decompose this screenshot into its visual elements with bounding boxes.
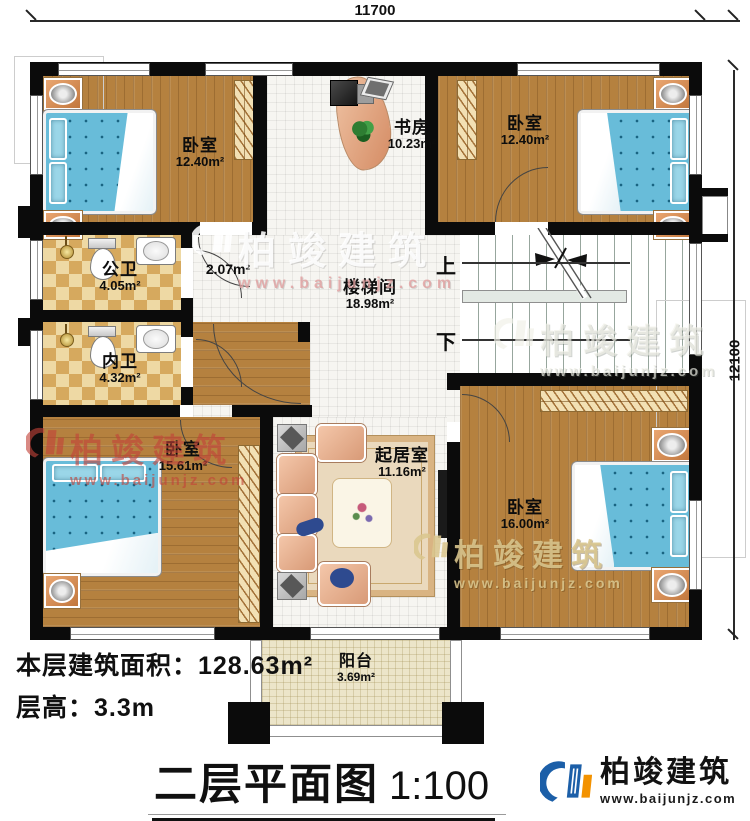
ceiling-lamp-icon: [60, 333, 74, 347]
wardrobe: [457, 80, 477, 160]
window: [689, 95, 702, 175]
window: [30, 240, 43, 300]
wall: [447, 373, 460, 390]
bed: [578, 110, 694, 214]
stair-up-label: 上: [436, 250, 456, 279]
dim-tick: [25, 9, 36, 20]
wall: [253, 75, 267, 235]
window: [517, 63, 660, 76]
window: [30, 95, 43, 175]
room-label-living-room: 起居室 11.16m²: [350, 446, 454, 480]
nightstand: [654, 78, 692, 110]
balcony-railing: [250, 725, 462, 737]
dim-tick: [727, 59, 738, 70]
wall: [232, 405, 312, 417]
drawing-title: 二层平面图 1:100: [152, 750, 495, 821]
window: [58, 63, 150, 76]
stair-down-line: [462, 339, 630, 341]
window: [70, 627, 215, 640]
rug-medallion: [332, 478, 392, 548]
wall: [438, 222, 495, 235]
window: [205, 63, 293, 76]
nightstand: [652, 568, 692, 602]
bed: [43, 110, 156, 214]
dimension-line-top: [30, 20, 740, 22]
room-label-study: 书房 10.23m²: [372, 118, 452, 152]
nightstand: [652, 428, 692, 462]
brand-name: 柏竣建筑: [600, 758, 736, 788]
sofa-seat: [277, 534, 317, 572]
brand-website: www.baijunjz.com: [600, 791, 736, 806]
dimension-right: 12100: [727, 316, 744, 406]
wall: [460, 373, 689, 386]
wall: [425, 75, 438, 235]
stair-direction-arrows: [505, 228, 635, 308]
room-label-stairwell: 楼梯间 18.98m²: [318, 278, 422, 312]
person-figure: [330, 568, 354, 588]
dim-tick: [727, 9, 738, 20]
balcony-sliding-door: [310, 627, 440, 640]
wall: [30, 222, 200, 235]
floor-plan-canvas: 11700 12100: [0, 0, 750, 821]
wardrobe: [540, 390, 688, 412]
side-table: [277, 572, 307, 600]
wall: [30, 405, 180, 417]
brand-logo: 柏竣建筑 www.baijunjz.com: [540, 756, 736, 808]
room-label-private-bath: 内卫 4.32m²: [70, 352, 170, 386]
wall: [252, 222, 267, 235]
wall-bumpout: [18, 318, 30, 346]
plant-icon: [352, 120, 374, 142]
wall: [260, 417, 273, 640]
room-label-hallway: 2.07m²: [192, 262, 264, 278]
nightstand: [44, 78, 82, 110]
dimension-top: 11700: [330, 2, 420, 19]
bed: [43, 458, 161, 576]
balcony-pillar: [228, 702, 270, 744]
room-label-bedroom-tr: 卧室 12.40m²: [475, 114, 575, 148]
ceiling-lamp-icon: [60, 245, 74, 259]
bed: [572, 462, 694, 570]
room-label-bedroom-br: 卧室 16.00m²: [475, 498, 575, 532]
sofa-seat: [277, 454, 317, 496]
wall-bumpout: [702, 188, 728, 196]
window: [30, 330, 43, 400]
floor-height-text: 层高：3.3m: [16, 688, 155, 724]
floor-area-text: 本层建筑面积：128.63m²: [16, 646, 313, 682]
wall: [181, 235, 193, 248]
window: [689, 500, 702, 590]
room-label-balcony: 阳台 3.69m²: [306, 653, 406, 684]
balcony-pillar: [442, 702, 484, 744]
window: [689, 243, 702, 355]
window: [500, 627, 650, 640]
title-text: 二层平面图: [154, 750, 379, 812]
sink: [136, 325, 176, 353]
room-label-bedroom-tl: 卧室 12.40m²: [150, 136, 250, 170]
stair-up-line: [462, 262, 630, 264]
title-underline: [148, 814, 506, 815]
dim-tick: [694, 9, 705, 20]
computer-monitor-icon: [330, 80, 358, 106]
ac-platform: [702, 196, 728, 236]
room-label-public-bath: 公卫 4.05m²: [70, 260, 170, 294]
wall: [30, 310, 193, 322]
wall: [181, 387, 193, 405]
wardrobe: [238, 445, 260, 623]
side-table: [277, 424, 307, 452]
wall-bumpout: [702, 234, 728, 242]
room-label-bedroom-bl: 卧室 15.61m²: [133, 440, 233, 474]
nightstand: [44, 574, 80, 608]
tv: [438, 470, 447, 538]
wall: [181, 298, 193, 337]
title-scale: 1:100: [389, 764, 489, 809]
stair-down-label: 下: [436, 326, 456, 355]
wall-bumpout: [18, 206, 30, 238]
brand-logo-icon: [540, 756, 592, 808]
